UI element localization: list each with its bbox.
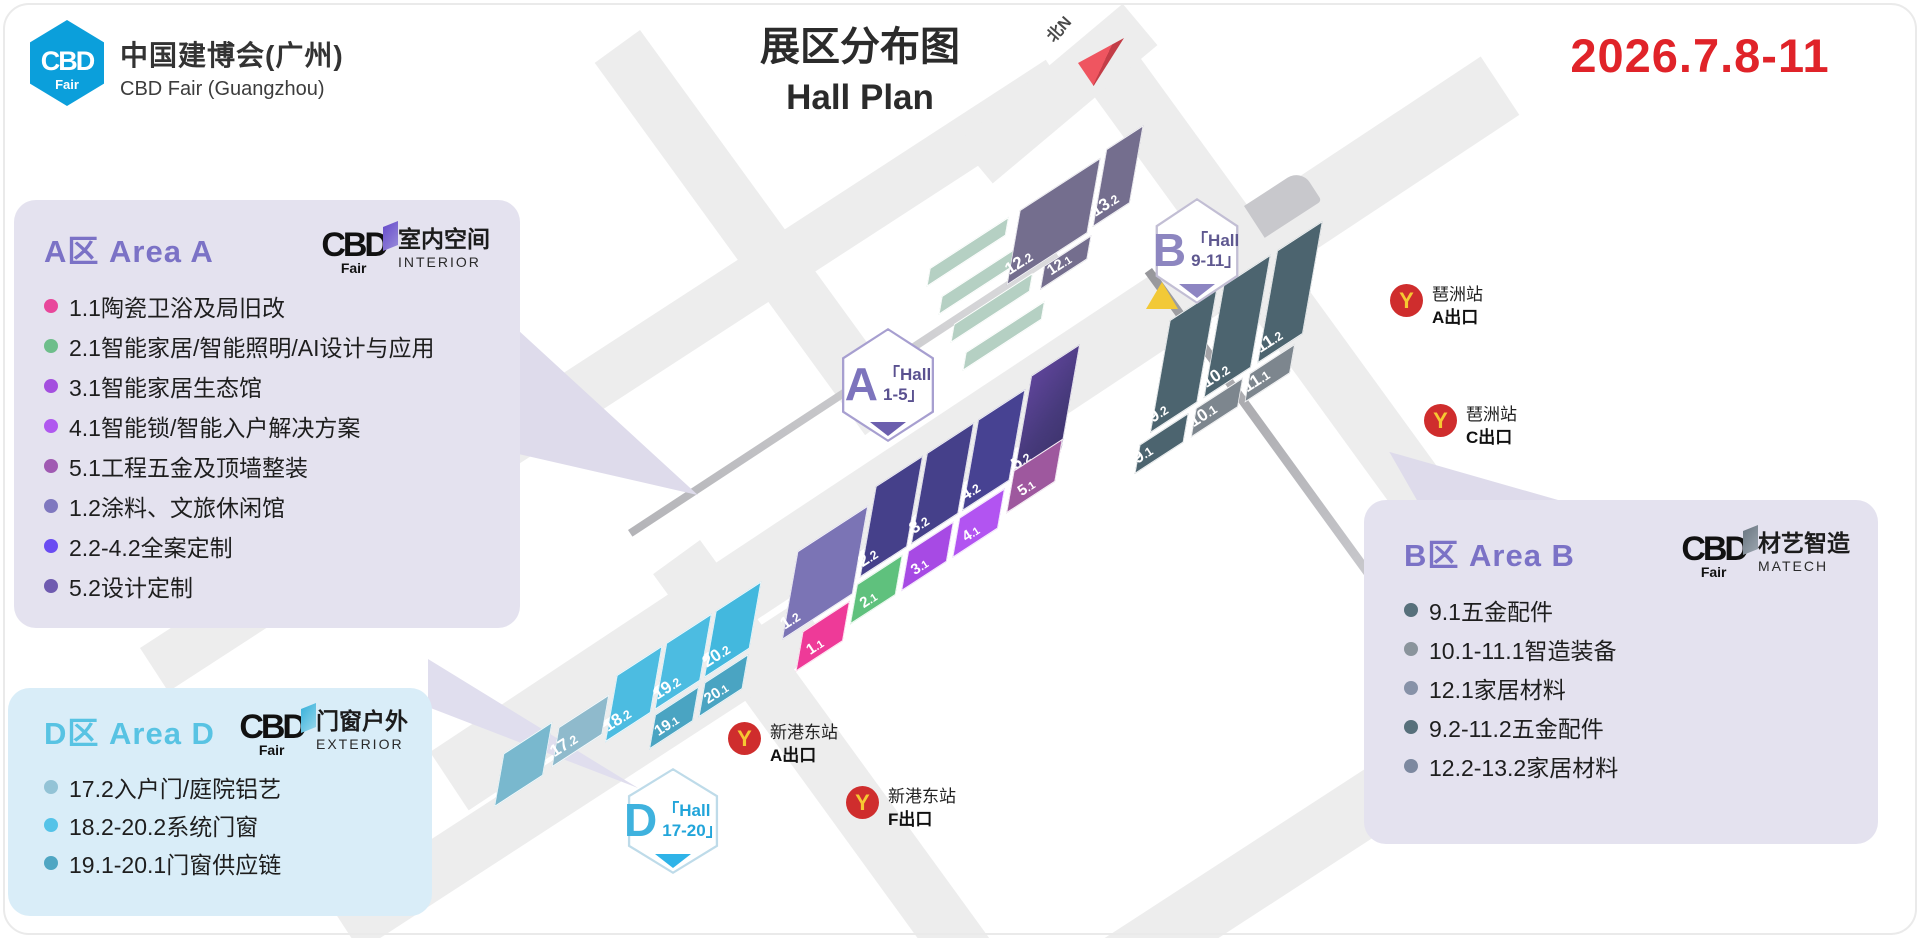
badge-hall-range: 「Hall9-11」 [1191,231,1241,272]
legend-dot-icon [44,499,58,513]
badge-letter: D [624,799,657,843]
legend-dot-icon [1404,759,1418,773]
legend-dot-icon [44,856,58,870]
legend-item: 9.1五金配件 [1404,590,1854,629]
legend-item: 4.1智能锁/智能入户解决方案 [44,406,494,446]
area-a-subtitle-cn: 室内空间 [398,226,490,252]
logo-flag-icon [383,221,398,251]
legend-dot-icon [44,818,58,832]
legend-item: 1.1陶瓷卫浴及局旧改 [44,286,494,326]
station-exit: A出口 [770,745,838,768]
area-b-title: B区 Area B [1404,530,1575,575]
legend-item: 9.2-11.2五金配件 [1404,707,1854,746]
legend-dot-icon [44,379,58,393]
brand-name-cn: 中国建博会(广州) [120,34,344,74]
legend-dot-icon [1404,681,1418,695]
legend-item: 5.1工程五金及顶墙整装 [44,446,494,486]
legend-dot-icon [44,339,58,353]
metro-logo-icon: Y [846,786,879,819]
station-name: 琶洲站 [1466,404,1517,427]
station-name: 新港东站 [888,786,956,809]
legend-panel-area-a: A区 Area A CBDFair 室内空间INTERIOR 1.1陶瓷卫浴及局… [14,200,520,628]
legend-dot-icon [44,579,58,593]
metro-station-a: Y新港东站A出口 [728,722,838,768]
metro-logo-icon: Y [728,722,761,755]
page-title-cn: 展区分布图 [640,14,1080,72]
hall-badge-a: A「Hall1-5」 [838,328,938,442]
legend-item: 18.2-20.2系统门窗 [44,806,412,844]
hall-badge-d: D「Hall17-20」 [624,768,722,874]
badge-letter: A [845,363,878,407]
legend-item: 19.1-20.1门窗供应链 [44,844,412,882]
logo-flag-icon [1743,525,1758,555]
metro-station-c: Y琶洲站C出口 [1424,404,1517,450]
legend-item: 10.1-11.1智造装备 [1404,629,1854,668]
event-date: 2026.7.8-11 [1500,28,1900,83]
area-b-subtitle-en: MATECH [1758,558,1850,574]
area-a-subtitle-en: INTERIOR [398,254,490,270]
legend-item: 1.2涂料、文旅休闲馆 [44,486,494,526]
area-d-legend-list: 17.2入户门/庭院铝艺18.2-20.2系统门窗19.1-20.1门窗供应链 [44,768,412,882]
logo-flag-icon [301,703,316,733]
hall-badge-b: B「Hall9-11」 [1152,198,1242,304]
legend-dot-icon [44,780,58,794]
area-a-legend-list: 1.1陶瓷卫浴及局旧改2.1智能家居/智能照明/AI设计与应用3.1智能家居生态… [44,286,494,606]
hall-plan-page: 1.22.23.24.25.21.12.13.14.15.19.29.110.2… [0,0,1920,938]
page-title: 展区分布图 Hall Plan [640,14,1080,118]
metro-station-a: Y琶洲站A出口 [1390,284,1483,330]
badge-hall-range: 「Hall17-20」 [662,801,722,842]
legend-item: 12.2-13.2家居材料 [1404,746,1854,785]
area-a-title: A区 Area A [44,226,214,271]
station-exit: A出口 [1432,307,1483,330]
legend-item: 2.1智能家居/智能照明/AI设计与应用 [44,326,494,366]
legend-dot-icon [44,419,58,433]
brand-name-en: CBD Fair (Guangzhou) [120,78,344,101]
legend-dot-icon [1404,603,1418,617]
legend-dot-icon [1404,642,1418,656]
legend-dot-icon [44,459,58,473]
badge-letter: B [1153,229,1186,273]
metro-station-f: Y新港东站F出口 [846,786,956,832]
area-d-title: D区 Area D [44,708,215,753]
page-title-en: Hall Plan [640,78,1080,118]
legend-panel-area-d: D区 Area D CBDFair 门窗户外EXTERIOR 17.2入户门/庭… [8,688,432,916]
area-b-legend-list: 9.1五金配件10.1-11.1智造装备12.1家居材料9.2-11.2五金配件… [1404,590,1854,785]
station-name: 新港东站 [770,722,838,745]
cbd-fair-mini-logo-matech: CBDFair 材艺智造MATECH [1681,530,1854,578]
hall-number-label: 4.1 [944,512,997,555]
area-d-subtitle-en: EXTERIOR [316,736,408,752]
area-d-subtitle-cn: 门窗户外 [316,708,408,734]
station-name: 琶洲站 [1432,284,1483,307]
cbd-fair-logo: CBD Fair [30,20,104,106]
badge-hall-range: 「Hall1-5」 [883,365,931,406]
legend-item: 3.1智能家居生态馆 [44,366,494,406]
hall-13-2: 13.2 [1093,125,1144,227]
legend-item: 12.1家居材料 [1404,668,1854,707]
cbd-fair-mini-logo-interior: CBDFair 室内空间INTERIOR [321,226,494,274]
metro-logo-icon: Y [1390,284,1423,317]
brand-block: 中国建博会(广州) CBD Fair (Guangzhou) [120,34,344,101]
legend-dot-icon [44,299,58,313]
hall-number-label: 3.1 [893,545,946,588]
station-exit: C出口 [1466,427,1517,450]
legend-dot-icon [44,539,58,553]
cbd-fair-mini-logo-exterior: CBDFair 门窗户外EXTERIOR [239,708,412,756]
legend-dot-icon [1404,720,1418,734]
legend-item: 2.2-4.2全案定制 [44,526,494,566]
hall-number-label: 9.1 [1129,441,1156,468]
legend-panel-area-b: B区 Area B CBDFair 材艺智造MATECH 9.1五金配件10.1… [1364,500,1878,844]
metro-logo-icon: Y [1424,404,1457,437]
legend-item: 17.2入户门/庭院铝艺 [44,768,412,806]
hall-number-label: 9.2 [1145,400,1172,427]
area-b-subtitle-cn: 材艺智造 [1758,530,1850,556]
station-exit: F出口 [888,809,956,832]
legend-item: 5.2设计定制 [44,566,494,606]
